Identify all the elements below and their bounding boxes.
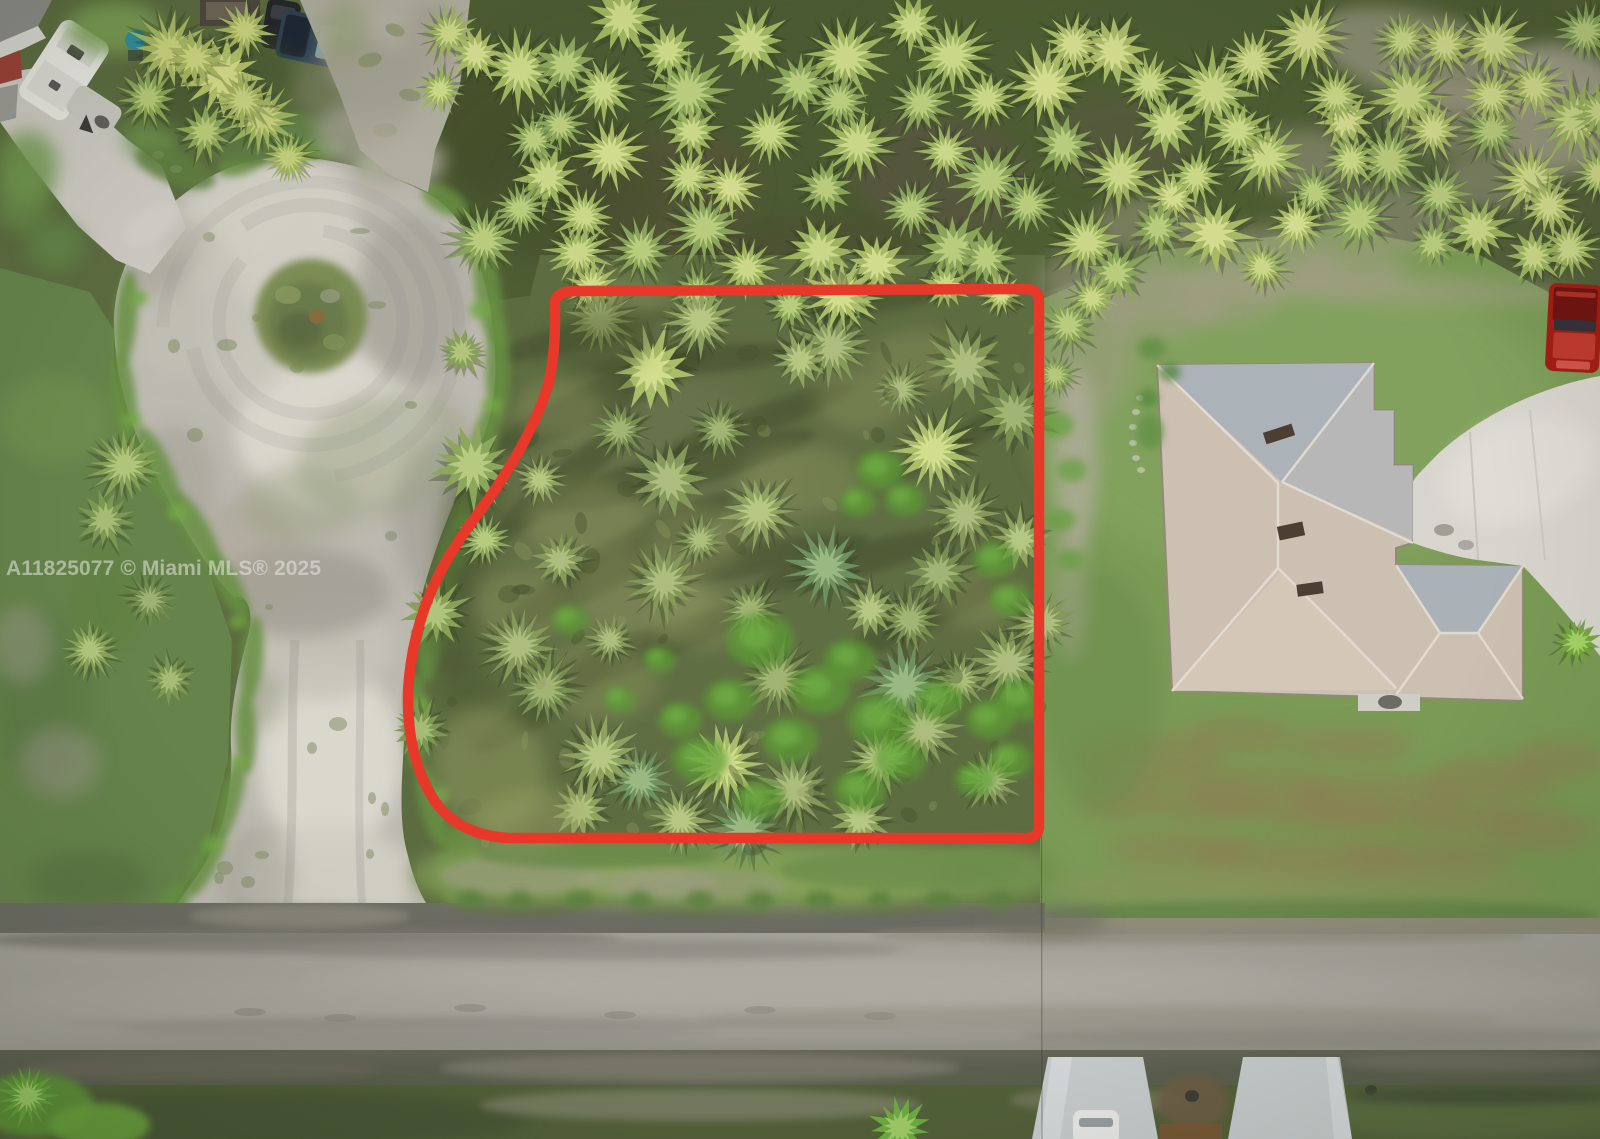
svg-text:A11825077 © Miami MLS® 2025: A11825077 © Miami MLS® 2025 [6, 557, 321, 580]
